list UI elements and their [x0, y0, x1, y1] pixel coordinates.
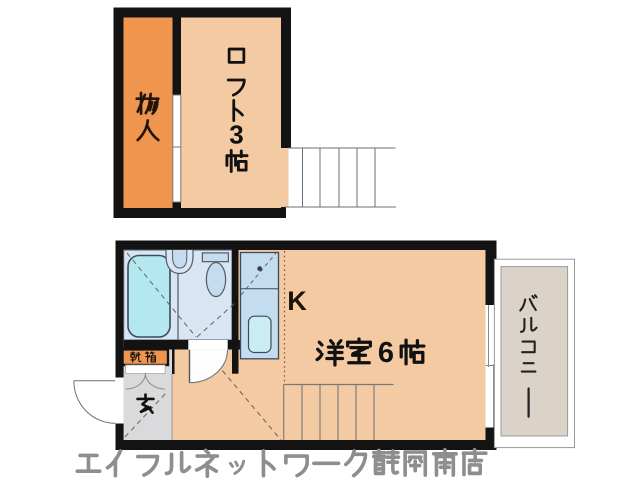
svg-text:K: K — [287, 286, 307, 316]
svg-text:3: 3 — [229, 120, 243, 150]
svg-text:6: 6 — [378, 337, 394, 369]
